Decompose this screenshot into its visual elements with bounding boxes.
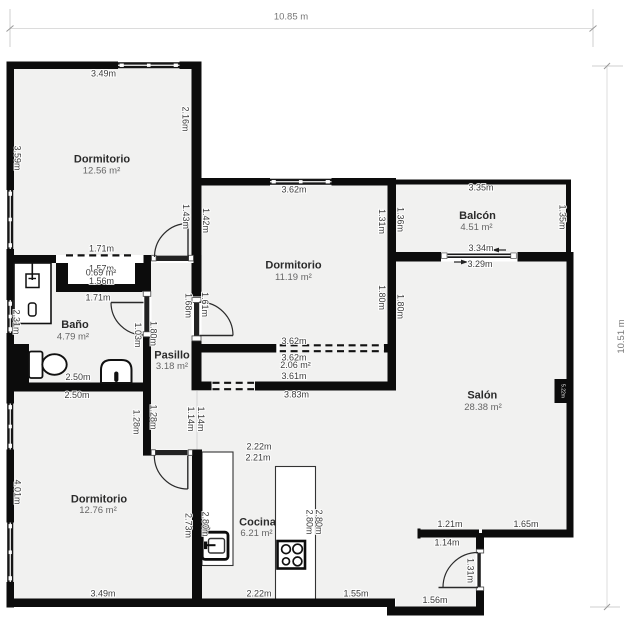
svg-text:Dormitorio: Dormitorio bbox=[265, 259, 322, 271]
svg-text:1.61m: 1.61m bbox=[200, 292, 210, 317]
svg-text:3.62m: 3.62m bbox=[281, 336, 306, 346]
svg-text:4.01m: 4.01m bbox=[13, 479, 23, 504]
svg-text:1.35m: 1.35m bbox=[557, 204, 567, 229]
svg-text:Cocina: Cocina bbox=[239, 516, 277, 528]
svg-text:1.68m: 1.68m bbox=[184, 293, 194, 318]
svg-text:1.71m: 1.71m bbox=[89, 244, 114, 254]
svg-text:Balcón: Balcón bbox=[459, 210, 496, 222]
svg-text:4.79 m²: 4.79 m² bbox=[57, 331, 89, 342]
svg-text:1.42m: 1.42m bbox=[201, 208, 211, 233]
svg-text:1.36m: 1.36m bbox=[396, 207, 406, 232]
svg-text:3.35m: 3.35m bbox=[468, 183, 493, 193]
svg-text:3.83m: 3.83m bbox=[284, 390, 309, 400]
svg-text:1.28m: 1.28m bbox=[132, 409, 142, 434]
svg-text:1.14m: 1.14m bbox=[196, 406, 206, 431]
svg-text:10.85 m: 10.85 m bbox=[274, 11, 308, 22]
svg-text:1.80m: 1.80m bbox=[377, 285, 387, 310]
svg-text:3.49m: 3.49m bbox=[90, 589, 115, 599]
svg-text:2.22m: 2.22m bbox=[246, 589, 271, 599]
svg-text:3.49m: 3.49m bbox=[91, 69, 116, 79]
svg-text:1.56m: 1.56m bbox=[89, 276, 114, 286]
svg-text:2.06 m²: 2.06 m² bbox=[280, 360, 311, 370]
svg-text:1.14m: 1.14m bbox=[434, 538, 459, 548]
svg-text:1.14m: 1.14m bbox=[186, 406, 196, 431]
svg-text:3.34m: 3.34m bbox=[468, 243, 493, 253]
svg-text:5.22m: 5.22m bbox=[560, 384, 566, 398]
svg-text:2.73m: 2.73m bbox=[184, 513, 194, 538]
svg-text:1.65m: 1.65m bbox=[513, 519, 538, 529]
svg-text:2.50m: 2.50m bbox=[65, 372, 90, 382]
svg-text:1.31m: 1.31m bbox=[377, 209, 387, 234]
svg-text:Salón: Salón bbox=[467, 389, 497, 401]
svg-text:1.56m: 1.56m bbox=[422, 595, 447, 605]
svg-text:1.28m: 1.28m bbox=[149, 404, 159, 429]
svg-text:Dormitorio: Dormitorio bbox=[71, 493, 128, 505]
svg-text:2.22m: 2.22m bbox=[246, 442, 271, 452]
svg-text:10.51 m: 10.51 m bbox=[616, 319, 627, 353]
svg-text:12.56 m²: 12.56 m² bbox=[83, 165, 121, 176]
svg-text:3.61m: 3.61m bbox=[281, 371, 306, 381]
svg-text:2.16m: 2.16m bbox=[181, 106, 191, 131]
svg-text:1.80m: 1.80m bbox=[149, 321, 159, 346]
svg-text:6.21 m²: 6.21 m² bbox=[240, 528, 272, 539]
svg-text:1.03m: 1.03m bbox=[133, 322, 143, 347]
svg-text:Pasillo: Pasillo bbox=[154, 349, 190, 361]
svg-text:1.43m: 1.43m bbox=[181, 204, 191, 229]
svg-text:3.29m: 3.29m bbox=[467, 259, 492, 269]
svg-text:Baño: Baño bbox=[61, 319, 89, 331]
svg-text:Dormitorio: Dormitorio bbox=[74, 153, 131, 165]
svg-text:2.21m: 2.21m bbox=[245, 453, 270, 463]
svg-text:2.80m: 2.80m bbox=[201, 511, 211, 536]
svg-text:11.19 m²: 11.19 m² bbox=[275, 272, 312, 283]
svg-text:2.80m: 2.80m bbox=[305, 509, 315, 534]
svg-text:2.80m: 2.80m bbox=[314, 509, 324, 534]
svg-text:28.38 m²: 28.38 m² bbox=[464, 402, 502, 413]
svg-text:12.76 m²: 12.76 m² bbox=[79, 505, 117, 516]
svg-text:3.18 m²: 3.18 m² bbox=[156, 361, 188, 372]
svg-text:1.21m: 1.21m bbox=[437, 519, 462, 529]
svg-text:3.62m: 3.62m bbox=[281, 185, 306, 195]
svg-text:1.71m: 1.71m bbox=[85, 293, 110, 303]
svg-text:2.31m: 2.31m bbox=[12, 309, 22, 334]
svg-text:1.31m: 1.31m bbox=[466, 558, 476, 583]
svg-text:2.50m: 2.50m bbox=[64, 390, 89, 400]
svg-text:1.80m: 1.80m bbox=[396, 294, 406, 319]
svg-text:3.59m: 3.59m bbox=[13, 145, 23, 170]
svg-text:4.51 m²: 4.51 m² bbox=[460, 222, 492, 233]
svg-text:1.55m: 1.55m bbox=[343, 589, 368, 599]
